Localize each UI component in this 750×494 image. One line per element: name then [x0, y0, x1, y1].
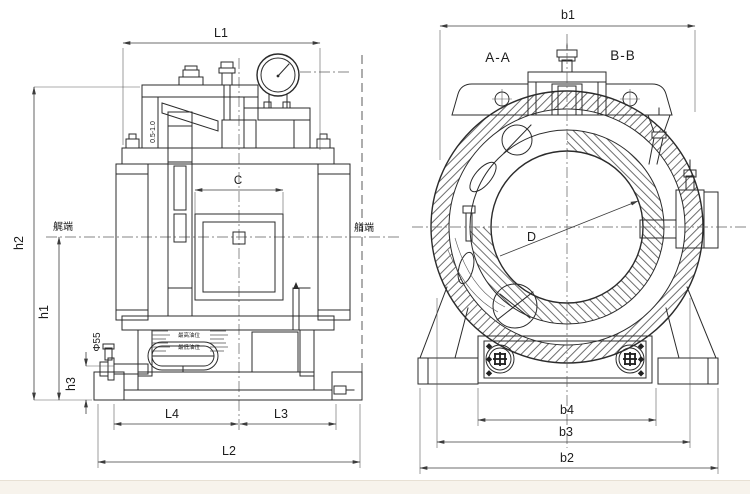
dim-label-L1: L1: [214, 26, 228, 40]
oil-max-label: 最高油位: [178, 331, 201, 339]
dim-L2: L2: [98, 404, 360, 468]
dim-h2: h2: [12, 87, 140, 400]
dim-label-L4: L4: [165, 407, 179, 421]
dim-b4: b4: [478, 388, 656, 426]
dim-label-b2: b2: [560, 451, 574, 465]
oil-sump: 最高油位 最低油位: [122, 282, 334, 390]
dim-label-h3: h3: [64, 377, 78, 391]
dim-label-phi55: Φ55: [92, 332, 103, 352]
bearing-assembly-drawing: C 0.5-1.0 最高油位 最低油位: [0, 0, 750, 494]
dim-label-L2: L2: [222, 444, 236, 458]
dim-label-h2: h2: [12, 236, 26, 250]
footer-band: [0, 480, 750, 494]
section-label-aa: A-A: [485, 50, 511, 65]
stern-end-label: 艉端: [53, 220, 73, 233]
technical-drawing-canvas: C 0.5-1.0 最高油位 最低油位: [0, 0, 750, 494]
dim-label-b1: b1: [561, 8, 575, 22]
dim-label-D: D: [527, 230, 536, 244]
dim-label-L3: L3: [274, 407, 288, 421]
dim-label-C: C: [234, 175, 242, 187]
breather-plug: [219, 62, 235, 85]
pressure-gauge: [257, 54, 299, 108]
base-plate: [94, 372, 362, 400]
water-inlet-fitting: Φ55: [92, 332, 148, 380]
side-section-view: C 0.5-1.0 最高油位 最低油位: [12, 26, 402, 468]
bearing-chamber: [148, 112, 318, 316]
flange-bolt-right: [317, 139, 330, 148]
dim-label-h1: h1: [37, 305, 51, 319]
end-section-view: D A-A B-B b1 b4 b3 b2: [412, 8, 748, 474]
bow-end-label: 艏端: [354, 221, 374, 234]
clearance-note: 0.5-1.0: [150, 121, 157, 143]
dim-label-b4: b4: [560, 403, 574, 417]
oil-min-label: 最低油位: [178, 343, 201, 351]
dim-label-b3: b3: [559, 425, 573, 439]
oil-scraper-wedge: [162, 103, 218, 131]
oil-filler-cap: [179, 66, 203, 85]
shaft-seal-right: [318, 164, 350, 320]
dim-h1: h1: [37, 237, 59, 400]
shaft-seal-left: [116, 164, 148, 320]
flange-bolt-left: [126, 139, 139, 148]
dim-h3: h3: [64, 352, 114, 414]
section-label-bb: B-B: [610, 48, 636, 63]
dim-L4: L4: [114, 404, 336, 430]
dim-L3: L3: [240, 407, 336, 424]
cooling-coil: [148, 342, 218, 372]
base-bolt: [334, 386, 346, 394]
dim-b3: b3: [437, 425, 690, 442]
drain-pipe: [293, 282, 310, 330]
